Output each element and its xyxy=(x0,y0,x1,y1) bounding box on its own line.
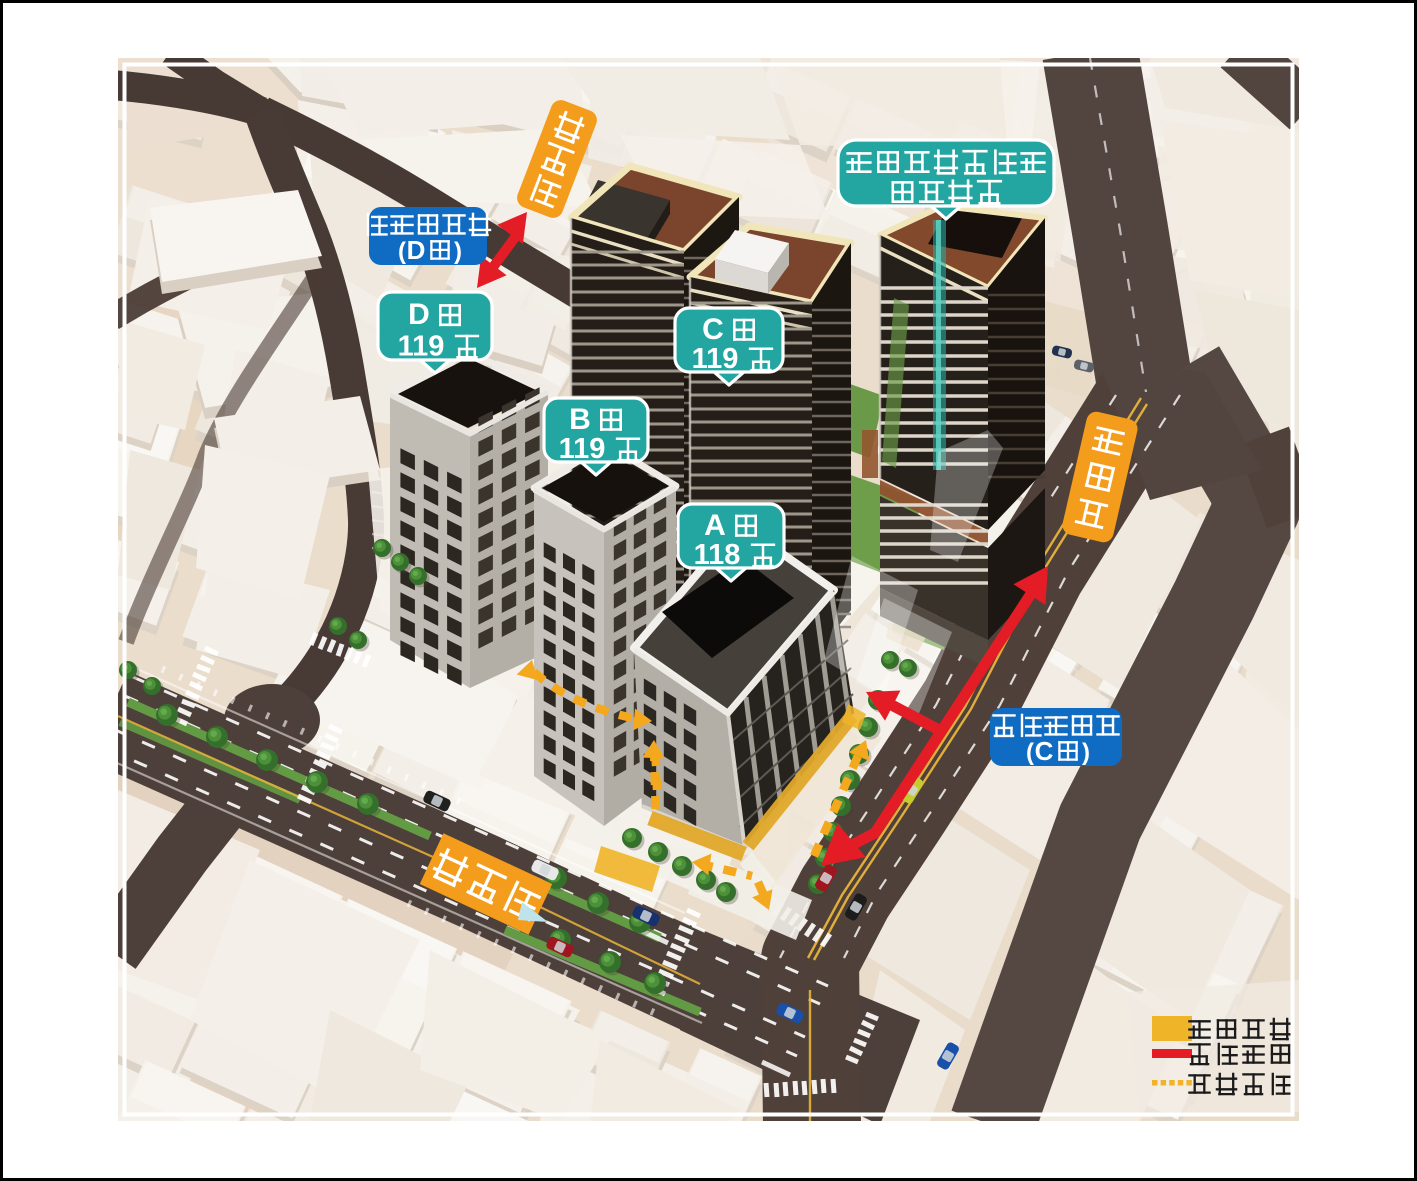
svg-text:118: 118 xyxy=(694,539,741,571)
svg-text:119: 119 xyxy=(692,343,739,375)
svg-text:C: C xyxy=(702,313,724,346)
svg-text:119: 119 xyxy=(398,330,445,362)
svg-text:119: 119 xyxy=(559,433,606,465)
svg-text:D: D xyxy=(407,235,426,265)
svg-text:(: ( xyxy=(398,238,406,265)
svg-text:D: D xyxy=(408,298,430,331)
svg-text:C: C xyxy=(1035,736,1054,766)
svg-text:): ) xyxy=(1082,739,1090,766)
svg-text:(: ( xyxy=(1026,739,1034,766)
svg-text:B: B xyxy=(569,403,591,436)
svg-text:): ) xyxy=(454,238,462,265)
svg-text:A: A xyxy=(704,509,726,542)
